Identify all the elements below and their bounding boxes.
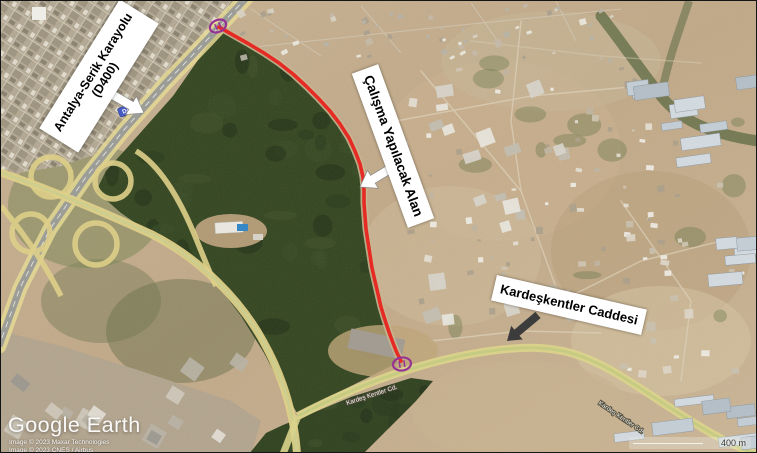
annotated-satellite-figure: Kardeş Kentler Cd. Kardeş Kentler Cd. D4… [0,0,757,453]
google-earth-watermark: Google Earth [8,413,141,438]
attribution-line: Image © 2023 Maxar Technologies [9,439,109,446]
attribution-line: Image © 2023 CNES / Airbus [9,447,93,453]
scale-bar-line [633,443,703,445]
scale-label: 400 m [721,438,746,448]
scale-bar: 400 m [629,437,751,449]
